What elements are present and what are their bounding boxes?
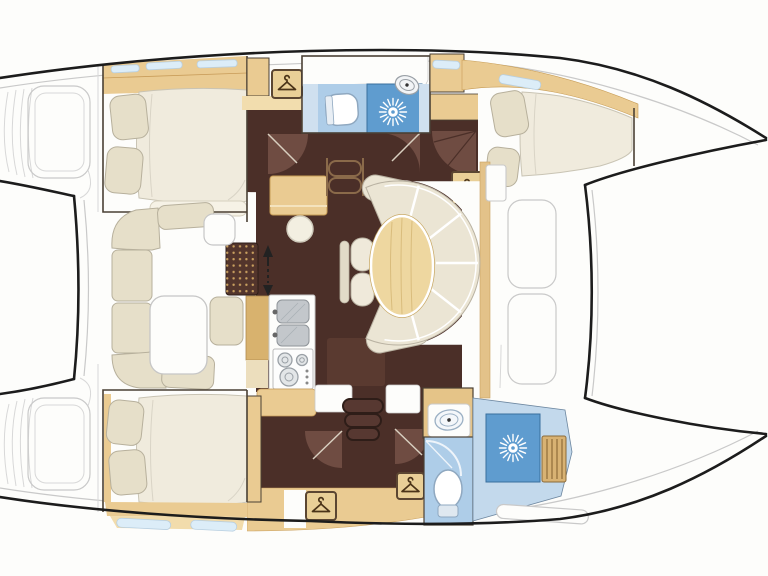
- stove-burner-icon: [280, 368, 298, 386]
- double-bed: [137, 88, 248, 203]
- corner-table: [204, 214, 235, 245]
- companionway-mat: [226, 243, 258, 295]
- seat-back: [340, 241, 349, 303]
- upper-aft-cabin: [103, 56, 247, 222]
- galley-counter-aft: [257, 389, 316, 416]
- foredeck-hatch-window: [508, 200, 556, 288]
- cabinet: [428, 94, 480, 120]
- pillow: [109, 93, 149, 141]
- band-gap: [284, 490, 306, 528]
- foredeck-hatch-window: [508, 294, 556, 384]
- counter: [386, 385, 420, 413]
- toilet: [434, 470, 462, 517]
- teak-grating: [542, 436, 566, 482]
- chart-desk: [270, 176, 327, 215]
- hull-window: [146, 61, 182, 70]
- pillow: [489, 89, 530, 138]
- pillow: [104, 146, 144, 195]
- hull-window: [197, 60, 237, 68]
- lower-companionway-steps: [343, 399, 383, 440]
- shower-head-icon: [500, 435, 527, 462]
- stove-burner-icon: [297, 355, 308, 366]
- toilet: [325, 93, 359, 126]
- hull-window: [111, 65, 139, 73]
- cabinet: [430, 54, 464, 92]
- hull-window: [191, 520, 237, 531]
- floor-plan-image: [0, 0, 768, 576]
- stove: [273, 349, 313, 389]
- stool: [287, 216, 313, 242]
- double-bed: [137, 394, 248, 505]
- faucet: [273, 310, 278, 315]
- faucet: [273, 333, 278, 338]
- salon-table: [150, 296, 207, 374]
- stove-burner-icon: [278, 353, 292, 367]
- settee-cushion: [112, 250, 152, 301]
- settee-cushion: [210, 297, 243, 345]
- galley-cabinet: [246, 360, 268, 388]
- shower-head-icon: [380, 99, 407, 126]
- sink-basin: [277, 325, 309, 346]
- floor-plan-svg: [0, 0, 768, 576]
- wardrobe: [306, 492, 336, 520]
- hull-window: [433, 60, 460, 69]
- settee-cushion: [112, 303, 152, 353]
- foredeck-door: [486, 165, 506, 201]
- lower-head: [423, 388, 473, 525]
- pillow: [108, 449, 148, 496]
- cabinet: [247, 58, 269, 96]
- wardrobe: [272, 70, 302, 98]
- cabinet: [247, 396, 261, 502]
- galley-cabinet: [246, 296, 270, 360]
- pillow: [105, 399, 144, 446]
